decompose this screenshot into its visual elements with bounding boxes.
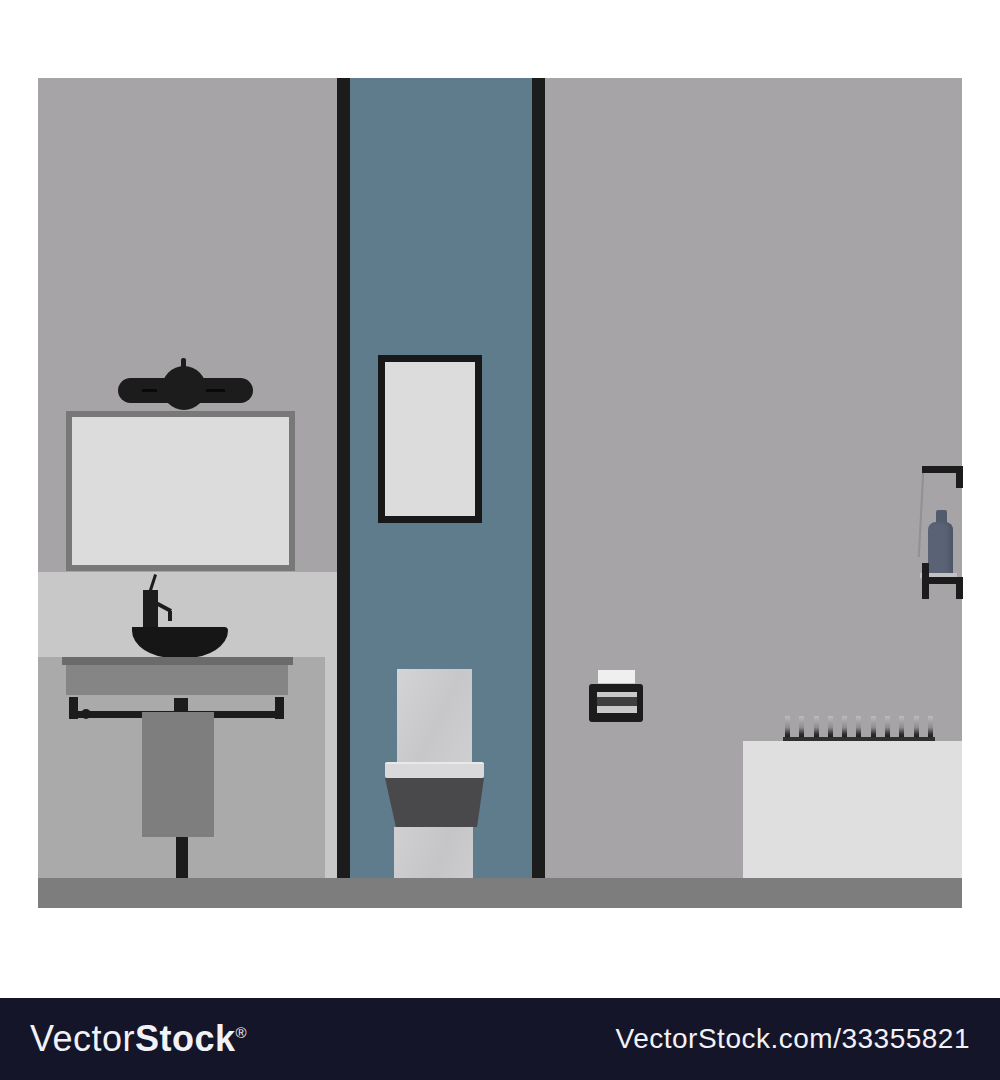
lamp-globe: [162, 366, 206, 410]
wall-hook-top-bracket: [956, 466, 963, 488]
sink-stand-pole: [176, 837, 188, 878]
sink-stand-pole: [174, 698, 188, 712]
product-bottle: [814, 716, 819, 737]
image-id-text: VectorStock.com/33355821: [616, 1023, 970, 1055]
toilet-paper-roll-shadow: [597, 697, 637, 706]
product-bottle: [785, 716, 790, 737]
hanging-towel: [142, 712, 214, 837]
wall-hook-bottom-bracket: [922, 563, 929, 599]
picture-frame: [378, 355, 482, 523]
faucet-spout-tip: [168, 611, 172, 621]
product-bottle-row: [785, 716, 933, 737]
panel-left-border: [337, 78, 350, 878]
tub-shelf-line: [783, 737, 935, 741]
bathroom-illustration: [38, 78, 962, 908]
mirror: [66, 411, 295, 571]
toilet-base: [394, 827, 473, 878]
product-bottle: [899, 716, 904, 737]
product-bottle: [914, 716, 919, 737]
product-bottle: [928, 716, 933, 737]
product-bottle: [871, 716, 876, 737]
product-bottle: [799, 716, 804, 737]
lamp-detail-line: [206, 389, 225, 392]
faucet: [143, 590, 158, 628]
bathtub: [743, 741, 962, 878]
product-bottle: [856, 716, 861, 737]
towel-rail-knob: [81, 709, 91, 719]
vectorstock-logo: VectorStock®: [30, 1018, 247, 1060]
logo-text-light: Vector: [30, 1018, 135, 1059]
toilet-paper: [598, 670, 635, 685]
toilet-tank: [397, 669, 472, 762]
logo-text-bold: Stock: [135, 1018, 236, 1059]
product-bottle: [842, 716, 847, 737]
counter-slab: [66, 665, 288, 695]
counter-top-edge: [62, 657, 293, 665]
product-bottle: [885, 716, 890, 737]
hanging-wire: [918, 473, 924, 557]
panel-right-border: [532, 78, 545, 878]
watermark-bar: VectorStock® VectorStock.com/33355821: [0, 998, 1000, 1080]
floor: [38, 878, 962, 908]
product-bottle: [828, 716, 833, 737]
lamp-detail-line: [142, 389, 157, 392]
toilet-bowl: [385, 778, 484, 827]
registered-mark: ®: [236, 1024, 248, 1041]
wall-hook-bottom-bracket: [956, 577, 963, 599]
panel-edge-strip: [325, 572, 337, 878]
soap-bottle: [928, 522, 953, 577]
stock-image-page: VectorStock® VectorStock.com/33355821: [0, 0, 1000, 1080]
toilet-seat: [385, 762, 484, 778]
